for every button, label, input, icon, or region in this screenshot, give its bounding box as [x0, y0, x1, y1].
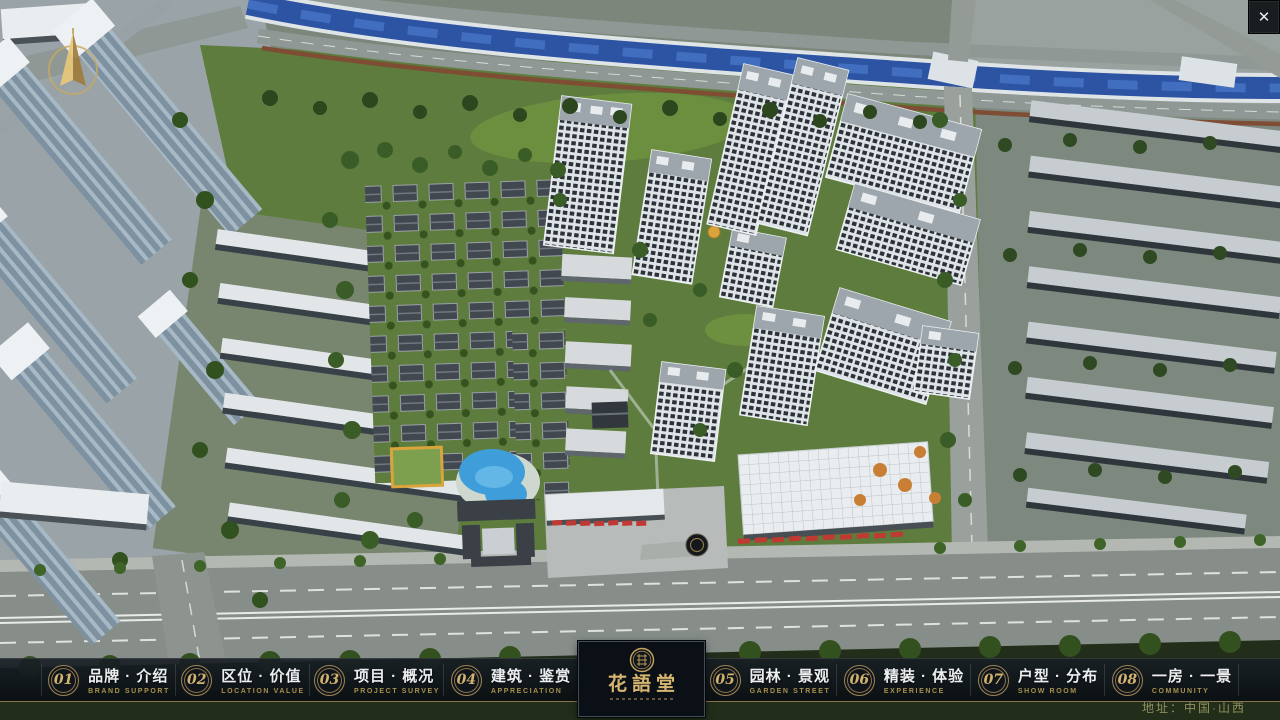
traditional-gatehouse [457, 499, 537, 568]
number-badge: 05 [710, 665, 741, 696]
number-badge: 06 [844, 665, 875, 696]
address-text: 地址：中国·山西 [1142, 699, 1246, 716]
project-logo-title: 花語堂 [603, 675, 680, 694]
number-badge: 04 [451, 665, 482, 696]
close-button[interactable]: ✕ [1248, 0, 1280, 34]
art-feature [708, 226, 720, 238]
number-badge: 03 [314, 665, 345, 696]
compass-icon [40, 28, 106, 108]
bottom-navbar: 01 品牌 · 介绍BRAND SUPPORT 02 区位 · 价值LOCATI… [0, 658, 1280, 702]
nav-item-architecture[interactable]: 04 建筑 · 鉴赏APPRECIATION [444, 659, 578, 701]
number-badge: 08 [1112, 665, 1143, 696]
clubhouse-pavilion [592, 401, 629, 428]
plaza-emblem [686, 534, 708, 556]
amenity-building [391, 447, 442, 487]
presentation-window: ✕ 01 品牌 · 介绍BRAND SUPPORT 02 区位 · 价值LOCA… [0, 0, 1280, 720]
nav-item-interior-experience[interactable]: 06 精装 · 体验EXPERIENCE [837, 659, 971, 701]
nav-item-location-value[interactable]: 02 区位 · 价值LOCATION VALUE [176, 659, 310, 701]
nav-item-floorplans[interactable]: 07 户型 · 分布SHOW ROOM [971, 659, 1105, 701]
number-badge: 07 [978, 665, 1009, 696]
project-logo-panel[interactable]: 花語堂 [578, 641, 705, 717]
nav-item-one-house-one-view[interactable]: 08 一房 · 一景COMMUNITY [1105, 659, 1239, 701]
nav-item-brand-intro[interactable]: 01 品牌 · 介绍BRAND SUPPORT [42, 659, 176, 701]
number-badge: 01 [48, 665, 79, 696]
logo-tagline [610, 698, 674, 700]
close-icon: ✕ [1258, 8, 1271, 26]
right-district-ground [975, 90, 1280, 560]
nav-item-project-overview[interactable]: 03 项目 · 概况PROJECT SURVEY [310, 659, 444, 701]
aerial-render-viewport[interactable] [0, 0, 1280, 720]
nav-item-landscape[interactable]: 05 园林 · 景观GARDEN STREET [703, 659, 837, 701]
number-badge: 02 [181, 665, 212, 696]
seal-icon [629, 647, 655, 673]
